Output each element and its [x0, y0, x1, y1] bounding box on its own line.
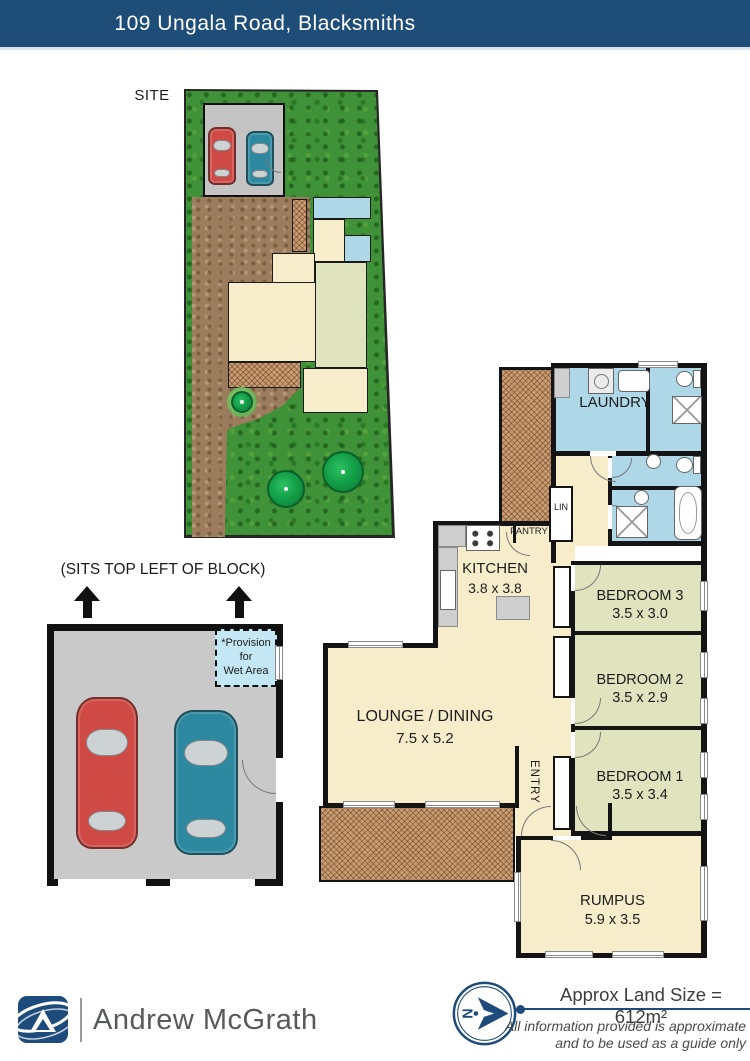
wall: [323, 643, 328, 808]
room-label-laundry: LAUNDRY: [560, 394, 670, 411]
wall: [551, 363, 707, 368]
page-title: 109 Ungala Road, Blacksmiths: [0, 0, 530, 47]
car-windshield: [184, 740, 228, 766]
wall: [608, 803, 612, 840]
stove: [466, 525, 500, 551]
car-rear-window: [88, 811, 126, 831]
window: [638, 361, 678, 368]
footer-divider: [80, 998, 82, 1042]
wet-area-line: *Provision: [217, 637, 275, 651]
site-plan: [184, 89, 395, 538]
wall: [571, 631, 707, 635]
wet-area-line: for: [217, 651, 275, 665]
garage-plan-note: (SITS TOP LEFT OF BLOCK): [43, 561, 283, 579]
header-bar: 109 Ungala Road, Blacksmiths: [0, 0, 750, 50]
window: [275, 646, 283, 680]
site-house-bedrooms: [315, 262, 367, 368]
car-rear-window: [252, 170, 268, 178]
up-arrow-icon: [74, 586, 100, 618]
room-dims-bedroom3: 3.5 x 3.0: [578, 606, 702, 623]
window: [700, 866, 708, 921]
basin: [634, 490, 649, 505]
arrow-stem: [235, 600, 244, 618]
shower: [616, 506, 648, 538]
site-house-rumpus: [303, 368, 368, 413]
door-opening: [553, 836, 581, 840]
bathtub: [674, 486, 702, 540]
room-dims-rumpus: 5.9 x 3.5: [540, 912, 685, 929]
kitchen-counter: [438, 525, 466, 547]
car-rear-window: [186, 819, 226, 838]
arrow-head: [226, 586, 252, 601]
room-dims-bedroom1: 3.5 x 3.4: [578, 787, 702, 804]
wardrobe: [553, 756, 571, 830]
deck-top: [499, 367, 554, 525]
garage-door-opening: [58, 879, 146, 887]
tree-icon: [322, 451, 364, 493]
window: [545, 951, 593, 958]
window: [514, 872, 521, 922]
laundry-tub: [618, 370, 650, 392]
site-house-deck-top: [292, 199, 307, 252]
window: [348, 641, 403, 648]
arrow-head: [74, 586, 100, 601]
room-label-linen: LIN: [549, 502, 573, 512]
brand-name: Andrew McGrath: [93, 1004, 318, 1037]
wet-area-provision: *Provision for Wet Area: [215, 629, 277, 687]
wardrobe: [553, 636, 571, 698]
site-house-laundry: [313, 197, 371, 219]
disclaimer-line-2: and to be used as a guide only: [415, 1035, 746, 1051]
tree-icon: [267, 470, 305, 508]
teal-car: [174, 710, 238, 855]
room-dims-kitchen: 3.8 x 3.8: [445, 580, 545, 596]
room-label-bedroom3: BEDROOM 3: [578, 588, 702, 605]
toilet-tank: [693, 456, 701, 474]
room-label-lounge-dining: LOUNGE / DINING: [335, 708, 515, 726]
tree-icon: [231, 391, 253, 413]
car-windshield: [251, 143, 269, 154]
deck-bottom: [319, 806, 515, 882]
shower: [672, 396, 702, 424]
car-rear-window: [214, 169, 230, 177]
red-car: [208, 127, 236, 185]
car-windshield: [86, 729, 129, 756]
room-label-entry: ENTRY: [528, 760, 540, 828]
site-house-deck-bottom: [228, 362, 301, 388]
wall: [515, 746, 519, 806]
up-arrow-icon: [226, 586, 252, 618]
car-windshield: [213, 140, 231, 151]
andrew-mcgrath-logo: [18, 996, 68, 1043]
site-plan-label: SITE: [130, 87, 174, 104]
wall: [551, 451, 707, 456]
wet-area-line: Wet Area: [217, 665, 275, 679]
toilet-tank: [693, 370, 701, 388]
window: [425, 801, 500, 808]
door-opening: [276, 758, 283, 802]
window: [343, 801, 395, 808]
site-house-lounge: [228, 282, 316, 362]
wall: [571, 726, 707, 730]
disclaimer-line-1: All information provided is approximate: [415, 1018, 746, 1034]
room-dims-lounge-dining: 7.5 x 5.2: [335, 730, 515, 747]
kitchen-island: [496, 596, 530, 620]
toilet: [676, 371, 693, 387]
room-label-bedroom2: BEDROOM 2: [578, 672, 702, 689]
garage-door-opening: [170, 879, 255, 887]
room-label-pantry: PANTRY: [505, 527, 553, 538]
page: 109 Ungala Road, Blacksmiths SITE: [0, 0, 750, 1061]
washing-machine: [588, 368, 614, 394]
window: [612, 951, 664, 958]
room-label-kitchen: KITCHEN: [445, 560, 545, 577]
arrow-stem: [83, 600, 92, 618]
toilet: [676, 457, 693, 473]
red-car: [76, 697, 138, 849]
room-label-rumpus: RUMPUS: [540, 892, 685, 909]
site-house-hall: [313, 219, 345, 262]
wall: [610, 541, 707, 546]
room-label-bedroom1: BEDROOM 1: [578, 769, 702, 786]
wardrobe: [553, 566, 571, 628]
basin: [646, 454, 661, 469]
room-dims-bedroom2: 3.5 x 2.9: [578, 690, 702, 707]
